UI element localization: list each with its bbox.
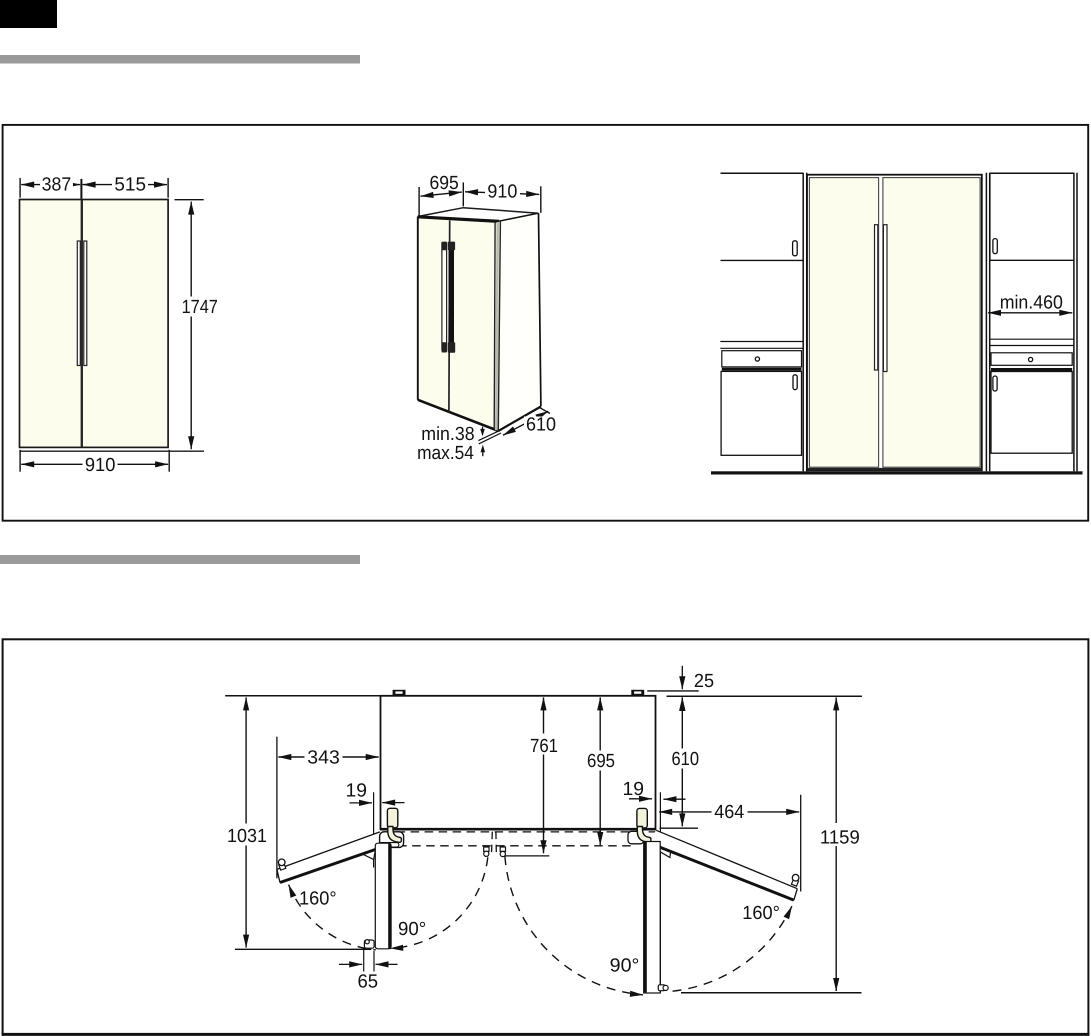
svg-text:min.460: min.460	[1000, 293, 1063, 314]
svg-text:910: 910	[85, 455, 116, 476]
svg-text:910: 910	[487, 181, 517, 202]
svg-text:343: 343	[307, 747, 340, 768]
svg-text:90°: 90°	[610, 955, 640, 976]
svg-text:160°: 160°	[299, 888, 337, 909]
svg-text:610: 610	[672, 749, 700, 770]
svg-text:695: 695	[587, 751, 615, 772]
svg-text:761: 761	[530, 736, 558, 757]
svg-text:695: 695	[430, 173, 459, 194]
svg-text:464: 464	[714, 802, 744, 823]
svg-text:max.54: max.54	[417, 443, 474, 464]
svg-text:1159: 1159	[820, 827, 860, 848]
svg-text:387: 387	[42, 175, 72, 196]
svg-text:1747: 1747	[182, 297, 218, 318]
svg-text:610: 610	[526, 414, 556, 435]
svg-text:160°: 160°	[742, 903, 780, 924]
svg-text:90°: 90°	[398, 919, 426, 940]
svg-text:25: 25	[694, 671, 714, 692]
svg-text:19: 19	[346, 780, 368, 801]
svg-text:1031: 1031	[227, 826, 267, 847]
svg-text:19: 19	[623, 779, 645, 800]
svg-text:65: 65	[358, 971, 379, 992]
svg-text:515: 515	[114, 174, 146, 195]
